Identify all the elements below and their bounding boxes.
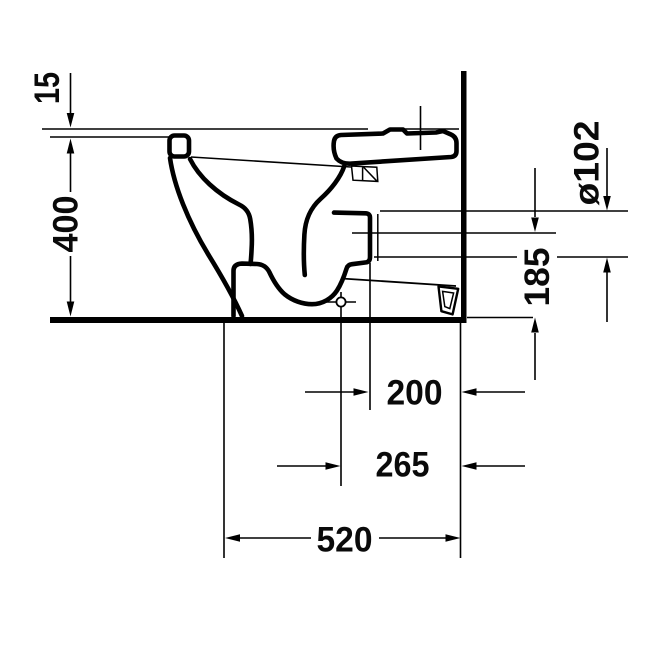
technical-drawing-canvas: 15 400 200 265 520 <box>0 0 650 650</box>
dim-label-520: 520 <box>317 521 373 560</box>
arrow-right-icon <box>326 462 341 470</box>
arrow-down-icon <box>67 302 75 317</box>
dim-label-outlet-diameter: ø102 <box>568 121 607 206</box>
dim-label-15: 15 <box>28 72 67 104</box>
toilet-ceramic <box>170 130 459 317</box>
toilet-dimension-drawing: 15 400 200 265 520 <box>0 0 650 650</box>
dim-label-265: 265 <box>376 446 430 485</box>
dim-label-200: 200 <box>387 374 443 413</box>
dim-label-185: 185 <box>518 248 557 307</box>
dimension-265: 265 <box>277 446 525 485</box>
dimension-520: 520 <box>225 521 461 560</box>
dimension-185: 185 <box>518 168 557 380</box>
floor-section <box>50 317 467 323</box>
arrow-left-icon <box>225 534 240 542</box>
flush-deck <box>334 130 457 164</box>
drain-center-marker <box>336 297 345 306</box>
dimension-102: ø102 <box>568 121 611 323</box>
wall-section <box>461 71 467 323</box>
dimension-400: 400 <box>47 139 86 317</box>
base-chamfer-line <box>344 279 457 286</box>
trap-tongue <box>304 166 344 275</box>
dimension-200: 200 <box>305 374 525 413</box>
dim-label-400: 400 <box>47 196 86 253</box>
arrow-up-icon <box>531 318 539 333</box>
flush-spreader-box <box>352 166 378 181</box>
arrow-right-icon <box>354 388 369 396</box>
arrow-down-icon <box>67 113 75 128</box>
arrow-up-icon <box>67 139 75 154</box>
rim-front-section <box>170 136 190 157</box>
dimension-15: 15 <box>28 72 74 128</box>
arrow-left-icon <box>462 462 477 470</box>
arrow-up-icon <box>603 258 611 273</box>
arrow-down-icon <box>531 218 539 233</box>
arrow-left-icon <box>462 388 477 396</box>
inner-bowl-wall <box>190 159 252 264</box>
arrow-right-icon <box>446 534 461 542</box>
outlet-hole-outer <box>439 286 459 314</box>
rim-shelf-line <box>191 157 351 167</box>
